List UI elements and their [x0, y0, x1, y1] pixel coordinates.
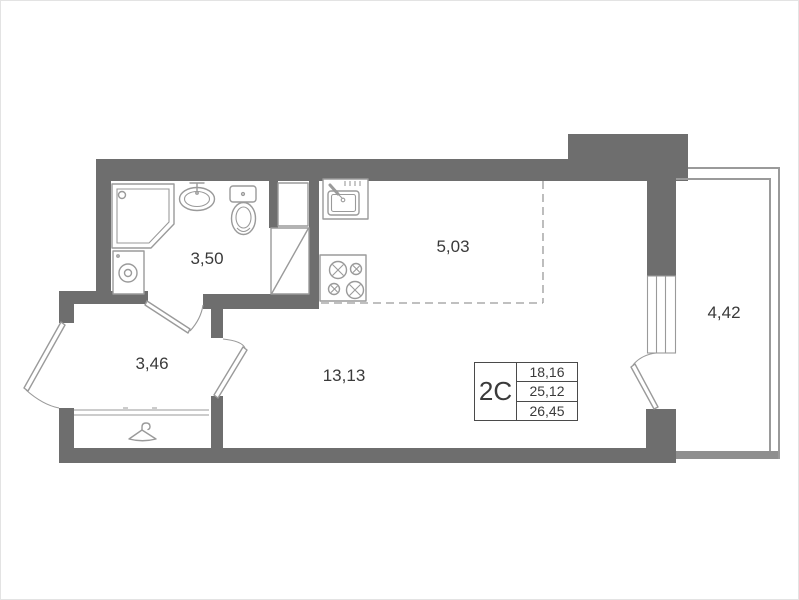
room-label-balcony: 4,42	[707, 303, 740, 323]
living-room-door-arc-icon	[214, 339, 247, 398]
area-summary-table: 2C 18,16 25,12 26,45	[474, 362, 578, 421]
shower-icon	[112, 184, 174, 248]
room-label-kitchen: 5,03	[436, 237, 469, 257]
wardrobe-rod	[74, 408, 209, 415]
entrance-door-arc-icon	[24, 322, 65, 408]
kitchen-sink-icon	[323, 179, 368, 219]
area-values-column: 18,16 25,12 26,45	[517, 363, 577, 420]
hanger-icon	[129, 423, 156, 441]
area-value-row: 18,16	[517, 363, 577, 381]
washing-machine-icon	[113, 251, 144, 294]
plan-symbols-layer	[1, 1, 799, 600]
bath-sink-icon	[180, 183, 215, 211]
room-label-living-room: 13,13	[323, 366, 366, 386]
toilet-icon	[230, 186, 256, 235]
area-value-row: 25,12	[517, 381, 577, 400]
balcony-door-arc-icon	[631, 353, 658, 409]
apartment-type-label: 2C	[475, 363, 517, 420]
bathroom-door-arc-icon	[145, 301, 203, 333]
vent-shaft-icon	[271, 183, 309, 294]
area-value-row: 26,45	[517, 401, 577, 420]
floor-plan: 3,50 5,03 3,46 13,13 4,42 2C 18,16 25,12…	[0, 0, 799, 600]
room-label-hallway: 3,46	[135, 354, 168, 374]
room-label-bathroom: 3,50	[190, 249, 223, 269]
stove-icon	[320, 255, 366, 301]
window-icon	[648, 276, 676, 353]
